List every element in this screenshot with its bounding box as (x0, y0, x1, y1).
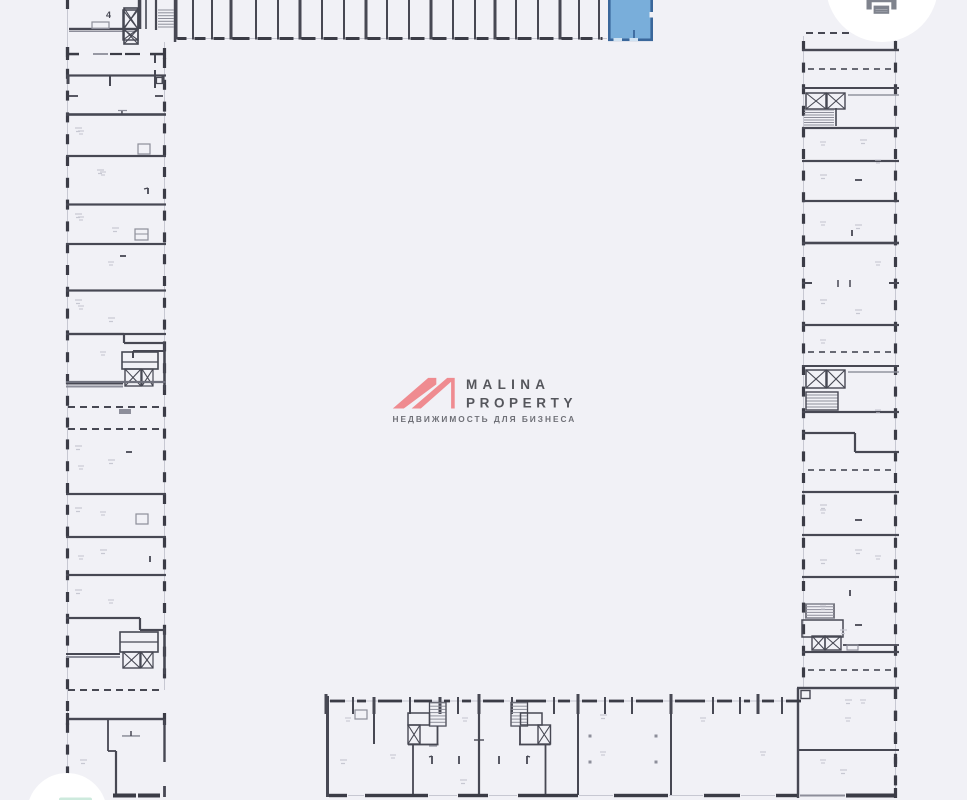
svg-text:4: 4 (106, 10, 111, 20)
svg-text:НЕДВИЖИМОСТЬ ДЛЯ БИЗНЕСА: НЕДВИЖИМОСТЬ ДЛЯ БИЗНЕСА (393, 414, 577, 424)
svg-text:PROPERTY: PROPERTY (466, 396, 577, 411)
svg-text:MALINA: MALINA (466, 377, 550, 392)
